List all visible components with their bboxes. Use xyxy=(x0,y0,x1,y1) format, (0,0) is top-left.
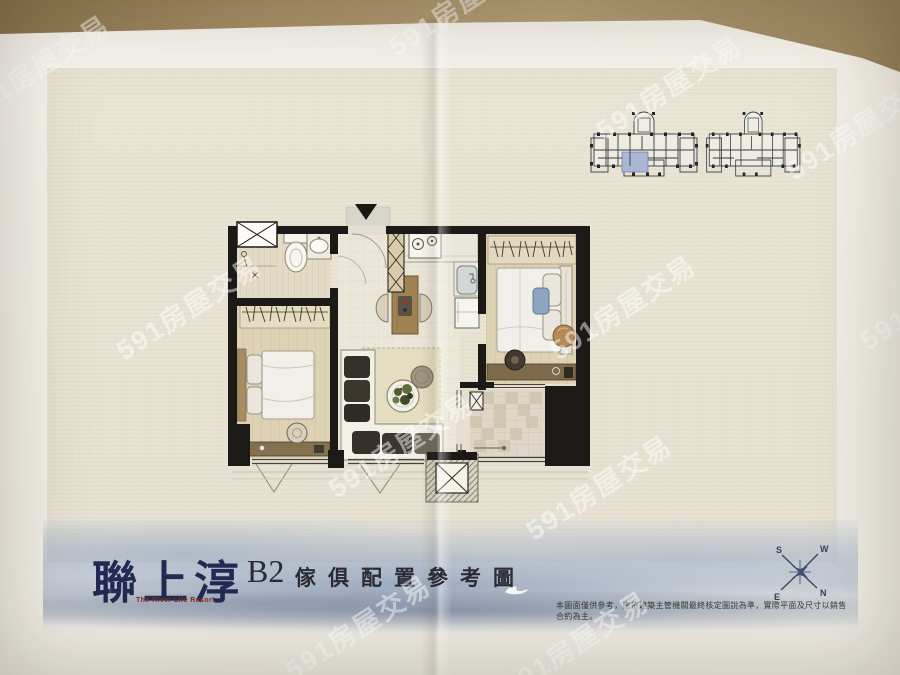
bed xyxy=(262,351,314,419)
key-plan-right xyxy=(706,112,801,176)
wardrobe xyxy=(488,236,576,264)
balcony xyxy=(470,390,545,458)
windows xyxy=(232,458,588,494)
console-desk xyxy=(487,364,576,380)
brand-subtitle: The River Life Resort xyxy=(136,597,215,604)
refrigerator xyxy=(455,298,479,328)
plan-code: B2 xyxy=(247,553,284,590)
key-plan-left xyxy=(590,112,698,176)
ac-platform xyxy=(426,452,478,502)
photo-of-floorplan-brochure: S W E N 聯上淳 The River Life Resort B2 傢俱配… xyxy=(0,0,900,675)
compass-n: N xyxy=(820,588,827,598)
balcony-slider xyxy=(456,408,462,444)
compass-w: W xyxy=(820,544,829,554)
main-floor-plan xyxy=(228,204,590,502)
accent-cushion xyxy=(533,288,549,314)
disclaimer-text: 本圖面僅供參考，應依建築主管機關最終核定圖說為準，實際平面及尺寸以銷售合約為主。 xyxy=(556,600,848,622)
plan-title: 傢俱配置參考圖 xyxy=(295,562,526,592)
pouf xyxy=(411,366,433,388)
kitchen-sink xyxy=(457,266,477,294)
headboard xyxy=(237,349,246,421)
table-lamp xyxy=(287,423,307,443)
compass-s: S xyxy=(776,545,782,555)
sink-basin xyxy=(310,239,328,253)
pillow xyxy=(247,387,262,414)
compass-icon: S W E N xyxy=(774,544,829,602)
living-room xyxy=(341,348,443,460)
pillow xyxy=(247,355,262,384)
